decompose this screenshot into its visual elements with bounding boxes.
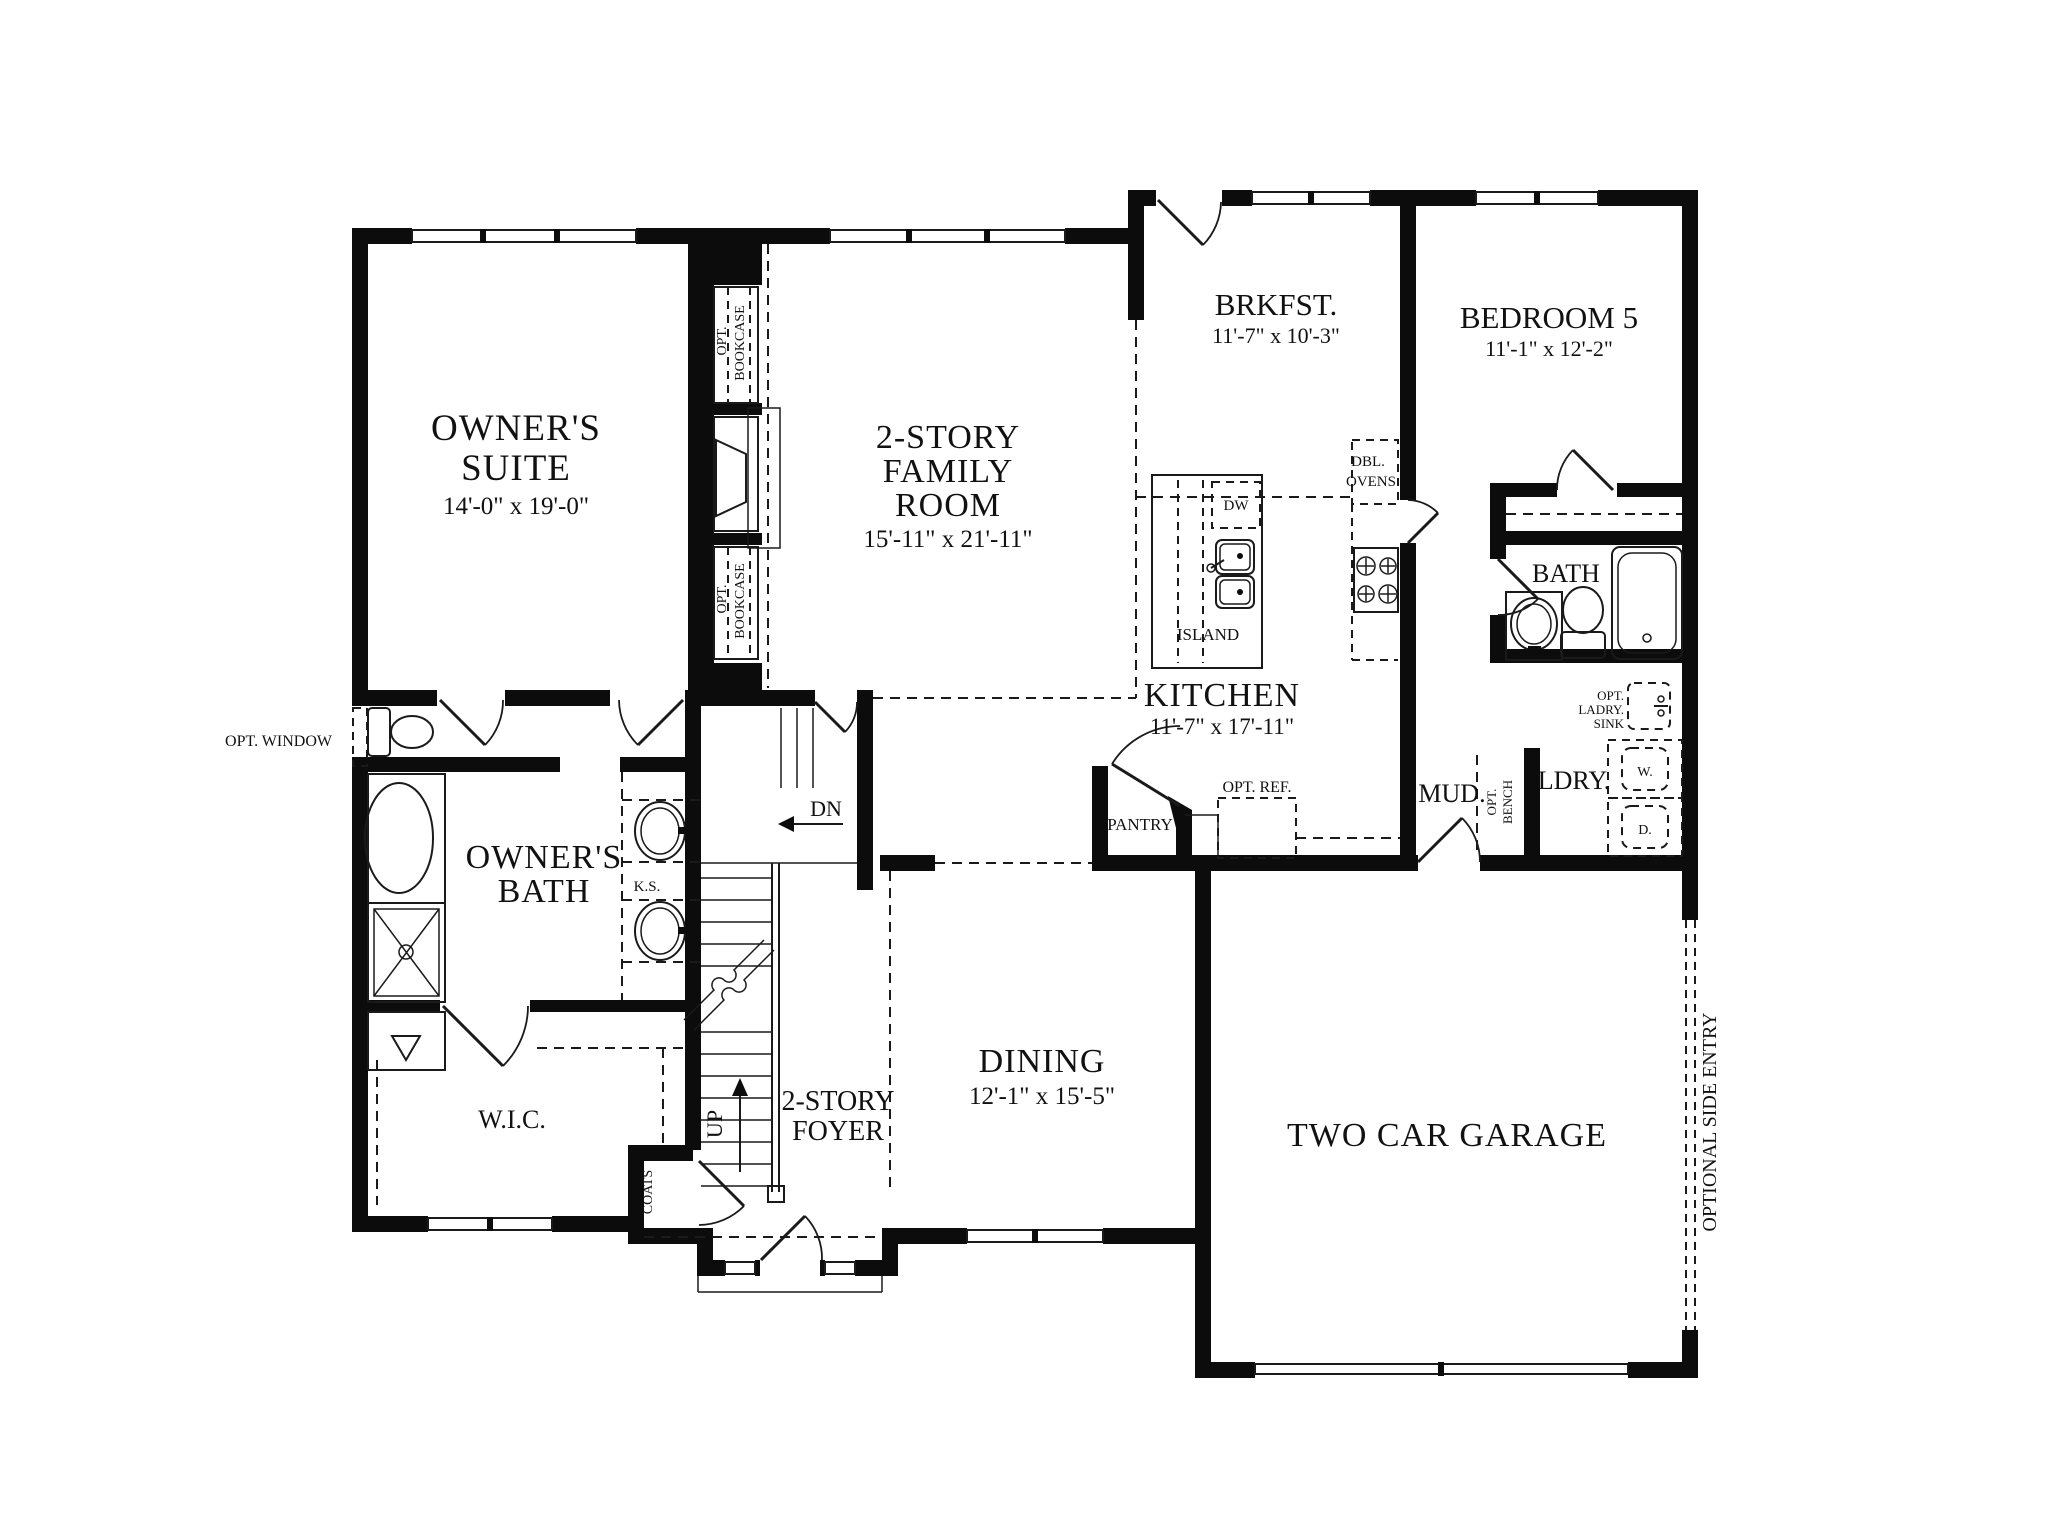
- label-kitchen: KITCHEN: [1144, 677, 1300, 714]
- front-door-sidelites: [725, 1262, 855, 1274]
- label-foyer-1: 2-STORY: [781, 1086, 894, 1117]
- label-opt-bookcase-bottom-2: BOOKCASE: [733, 563, 748, 638]
- label-owners-bath-2: BATH: [498, 873, 591, 910]
- opt-laundry-sink: [1628, 683, 1670, 729]
- label-washer: W.: [1637, 765, 1652, 780]
- front-porch: [698, 1276, 882, 1292]
- label-garage: TWO CAR GARAGE: [1287, 1117, 1607, 1154]
- island-sink: [1207, 540, 1254, 608]
- bathtub-owners: [365, 774, 445, 903]
- label-ldry: LDRY.: [1538, 766, 1611, 795]
- floor-plan-drawing: OWNER'S SUITE 14'-0" x 19'-0" 2-STORY FA…: [0, 0, 2048, 1536]
- label-opt-bookcase-top-1: OPT.: [715, 327, 730, 356]
- label-owners-suite-2: SUITE: [461, 448, 571, 489]
- wic-door: [443, 1006, 528, 1066]
- label-family-room-1: 2-STORY: [876, 419, 1020, 456]
- label-brkfst: BRKFST.: [1215, 287, 1338, 322]
- label-family-room-3: ROOM: [895, 487, 1001, 524]
- label-island: ISLAND: [1177, 625, 1239, 644]
- label-opt-ref: OPT. REF.: [1222, 779, 1291, 796]
- label-owners-suite-dims: 14'-0" x 19'-0": [443, 493, 589, 520]
- family-room-window: [830, 229, 1065, 243]
- label-brkfst-dims: 11'-7" x 10'-3": [1212, 323, 1340, 348]
- walls: [352, 190, 1698, 1378]
- toilet-owners: [368, 708, 433, 756]
- label-bedroom5-dims: 11'-1" x 12'-2": [1485, 336, 1613, 361]
- water-closet-door: [440, 700, 503, 745]
- label-optional-side-entry: OPTIONAL SIDE ENTRY: [1699, 1012, 1721, 1231]
- label-opt-ldry-1: OPT.: [1597, 688, 1624, 703]
- label-dining: DINING: [979, 1043, 1106, 1080]
- label-dryer: D.: [1638, 823, 1652, 838]
- label-pantry: PANTRY: [1107, 815, 1173, 834]
- fireplace: [714, 408, 780, 548]
- label-bath: BATH: [1532, 559, 1600, 588]
- label-dbl-ovens-2: OVENS: [1346, 474, 1396, 490]
- toilet-bath2: [1561, 587, 1605, 658]
- label-opt-window: OPT. WINDOW: [225, 733, 333, 750]
- label-opt-bench-1: OPT.: [1484, 789, 1499, 816]
- label-dn: DN: [810, 796, 842, 821]
- floor-plan-page: OWNER'S SUITE 14'-0" x 19'-0" 2-STORY FA…: [0, 0, 2048, 1536]
- label-family-room-dims: 15'-11" x 21'-11": [863, 526, 1032, 553]
- label-opt-bookcase-bottom-1: OPT.: [715, 585, 730, 614]
- label-dw: DW: [1224, 498, 1250, 514]
- kitchen-hall-door: [1408, 500, 1438, 543]
- bedroom5-closet-door: [1557, 450, 1613, 490]
- label-up: UP: [702, 1110, 727, 1138]
- owners-suite-window: [412, 229, 636, 243]
- label-owners-bath-1: OWNER'S: [466, 839, 623, 876]
- label-coats: COATS: [641, 1170, 656, 1214]
- label-owners-suite-1: OWNER'S: [431, 408, 601, 449]
- dining-window: [967, 1229, 1103, 1243]
- dashed-lines: [377, 244, 1695, 1330]
- breakfast-exterior-door: [1158, 200, 1221, 245]
- label-family-room-2: FAMILY: [883, 453, 1013, 490]
- label-mud: MUD.: [1418, 779, 1485, 808]
- label-ks: K.S.: [634, 879, 661, 895]
- label-dining-dims: 12'-1" x 15'-5": [969, 1083, 1115, 1110]
- suite-hall-door: [619, 700, 683, 745]
- label-bedroom5: BEDROOM 5: [1460, 300, 1638, 335]
- shower-seat: [368, 1012, 445, 1070]
- label-wic: W.I.C.: [478, 1105, 546, 1134]
- label-opt-bench-2: BENCH: [1500, 780, 1515, 824]
- label-dbl-ovens-1: DBL.: [1351, 454, 1385, 470]
- bedroom5-window: [1476, 191, 1598, 205]
- garage-door: [1255, 1362, 1628, 1376]
- up-arrow: [732, 1078, 748, 1172]
- label-foyer-2: FOYER: [792, 1116, 884, 1147]
- mud-garage-door: [1418, 818, 1480, 862]
- breakfast-window: [1252, 191, 1370, 205]
- label-opt-ldry-2: LADRY.: [1578, 702, 1624, 717]
- label-opt-bookcase-top-2: BOOKCASE: [733, 305, 748, 380]
- basement-stair-door: [815, 702, 857, 732]
- bathtub-bath2: [1612, 547, 1682, 659]
- label-opt-ldry-3: SINK: [1594, 716, 1625, 731]
- label-kitchen-dims: 11'-7" x 17'-11": [1150, 714, 1294, 739]
- cooktop: [1354, 548, 1398, 612]
- wic-window: [428, 1217, 552, 1231]
- coats-closet-door: [699, 1161, 744, 1225]
- shower-owners: [368, 903, 445, 1002]
- opt-ref-box: [1185, 798, 1400, 858]
- double-ovens-box: [1352, 440, 1398, 660]
